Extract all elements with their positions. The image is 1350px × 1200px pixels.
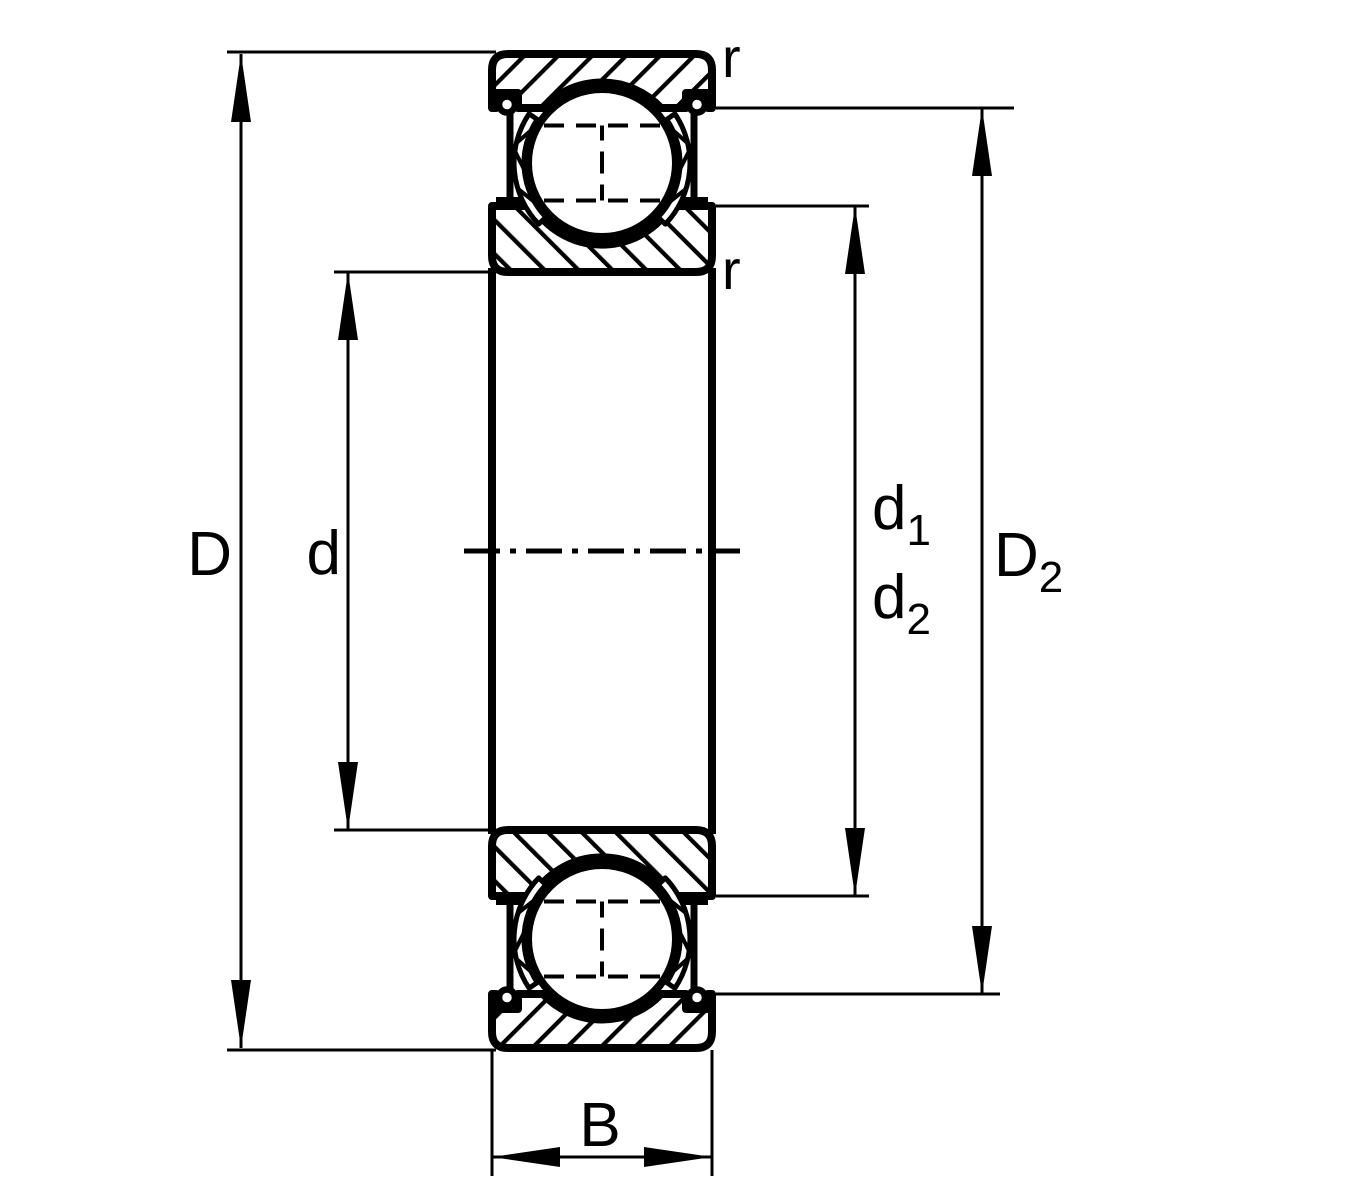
label-B: B bbox=[579, 1091, 620, 1160]
bearing-cross-section-svg: D d d1 d2 D2 B r r bbox=[0, 0, 1350, 1200]
bearing-section-top bbox=[492, 54, 712, 272]
label-d: d bbox=[307, 519, 341, 588]
bearing-dimension-drawing: D d d1 d2 D2 B r r bbox=[0, 0, 1350, 1200]
label-r-inner-ring: r bbox=[722, 238, 741, 301]
label-D: D bbox=[187, 520, 232, 589]
label-r-outer-ring: r bbox=[722, 26, 741, 89]
bearing-section-bottom bbox=[492, 830, 712, 1048]
